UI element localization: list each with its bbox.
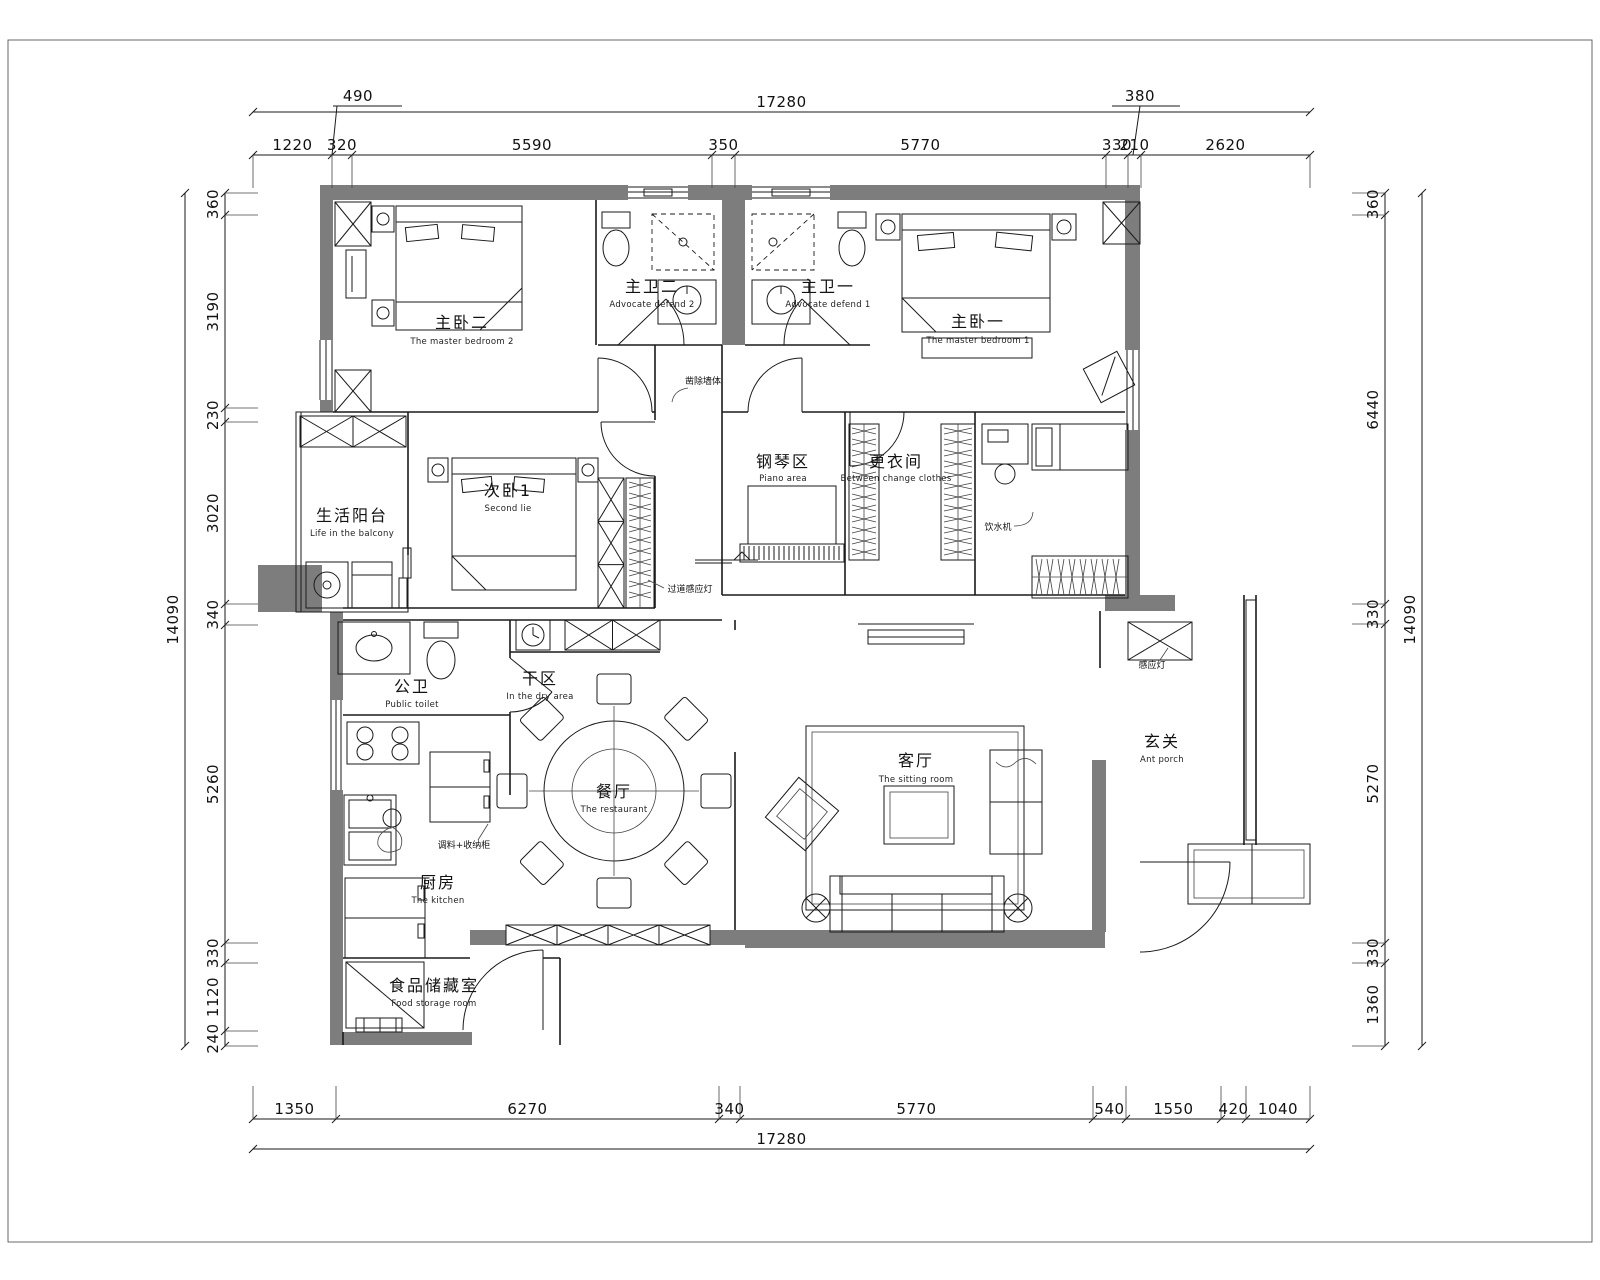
single-bed-icon xyxy=(1032,424,1128,470)
piano-icon xyxy=(740,486,844,562)
svg-text:公卫: 公卫 xyxy=(394,677,430,696)
svg-text:食品储藏室: 食品储藏室 xyxy=(389,976,479,995)
window-icon xyxy=(628,187,688,198)
armchair-icon xyxy=(765,777,838,850)
shower-icon xyxy=(652,214,714,270)
dim-label: 3020 xyxy=(204,493,222,533)
room-label-entry: 玄关Ant porch xyxy=(1140,732,1184,765)
svg-text:主卫一: 主卫一 xyxy=(801,277,855,296)
door-arc xyxy=(601,422,655,476)
nightstand-icon xyxy=(1052,214,1076,240)
room-label-second-bedroom: 次卧1Second lie xyxy=(484,481,532,514)
svg-text:Piano area: Piano area xyxy=(759,474,807,484)
annotations: 凿除墙体 饮水机 过道感应灯 调料+收纳柜 感应灯 xyxy=(438,375,1168,851)
nightstand-icon xyxy=(578,458,598,482)
bed-icon xyxy=(452,458,576,590)
kitchen-fixtures xyxy=(344,722,490,958)
windows xyxy=(320,187,1256,840)
room-label-balcony: 生活阳台Life in the balcony xyxy=(310,506,394,539)
svg-text:Life in the balcony: Life in the balcony xyxy=(310,529,394,539)
dim-label: 5770 xyxy=(896,1100,936,1118)
svg-text:Advocate defend 1: Advocate defend 1 xyxy=(785,300,870,310)
fridge-icon xyxy=(345,878,425,958)
public-bathroom-fixtures xyxy=(338,622,458,679)
svg-text:饮水机: 饮水机 xyxy=(984,521,1011,533)
window-icon xyxy=(752,187,830,198)
sheet-border xyxy=(8,40,1592,1242)
dim-label: 5260 xyxy=(204,764,222,804)
svg-text:Public toilet: Public toilet xyxy=(385,700,439,710)
svg-text:Ant porch: Ant porch xyxy=(1140,755,1184,765)
dim-label: 230 xyxy=(204,400,222,430)
room-label-living: 客厅The sitting room xyxy=(878,751,954,785)
window-icon xyxy=(331,700,341,790)
svg-text:The sitting room: The sitting room xyxy=(878,775,954,785)
annotation-corridor-sensor-light: 过道感应灯 xyxy=(648,580,713,595)
toilet-icon xyxy=(838,212,866,266)
svg-text:更衣间: 更衣间 xyxy=(869,452,923,471)
entry-landing xyxy=(1188,844,1310,904)
door-arc xyxy=(748,358,802,412)
dry-area-counter xyxy=(516,620,550,650)
dim-label: 1360 xyxy=(1364,984,1382,1024)
dim-label: 330 xyxy=(204,938,222,968)
toilet-icon xyxy=(602,212,630,266)
dim-label: 420 xyxy=(1218,1100,1248,1118)
svg-text:The kitchen: The kitchen xyxy=(410,896,464,906)
room-label-dry-area: 干区In the dry area xyxy=(506,669,573,702)
dim-label: 3190 xyxy=(204,291,222,331)
svg-text:凿除墙体: 凿除墙体 xyxy=(685,375,721,387)
dim-label: 6440 xyxy=(1364,389,1382,429)
svg-text:Between change clothes: Between change clothes xyxy=(840,474,951,484)
room-label-master-bath-1: 主卫一Advocate defend 1 xyxy=(785,277,870,310)
room-label-piano-area: 钢琴区Piano area xyxy=(756,452,810,484)
room-label-pantry: 食品储藏室Food storage room xyxy=(389,976,479,1009)
sink-icon xyxy=(344,795,396,865)
dim-label: 350 xyxy=(708,136,738,154)
svg-text:主卫二: 主卫二 xyxy=(625,277,679,296)
second-bedroom-furniture xyxy=(428,458,598,590)
study-room-furniture xyxy=(982,424,1128,484)
svg-text:Food storage room: Food storage room xyxy=(391,999,476,1009)
dim-label: 1120 xyxy=(204,977,222,1017)
pantry-fixtures xyxy=(346,962,424,1032)
room-labels: 主卧二The master bedroom 2 主卫二Advocate defe… xyxy=(310,277,1184,1009)
svg-text:餐厅: 餐厅 xyxy=(596,782,632,801)
dim-label: 1550 xyxy=(1153,1100,1193,1118)
svg-text:主卧一: 主卧一 xyxy=(951,312,1005,331)
toilet-icon xyxy=(424,622,458,679)
tv-cabinet-icon xyxy=(346,250,366,298)
svg-text:厨房: 厨房 xyxy=(420,873,456,892)
dim-label: 1350 xyxy=(274,1100,314,1118)
balcony-cabinet xyxy=(352,562,392,608)
dim-label: 320 xyxy=(327,136,357,154)
dim-label: 14090 xyxy=(1401,594,1419,644)
dim-label: 340 xyxy=(714,1100,744,1118)
generated-symbols xyxy=(300,202,1192,945)
dim-label: 1220 xyxy=(272,136,312,154)
nightstand-icon xyxy=(428,458,448,482)
svg-text:过道感应灯: 过道感应灯 xyxy=(667,583,712,595)
svg-text:感应灯: 感应灯 xyxy=(1138,659,1165,671)
room-label-dining: 餐厅The restaurant xyxy=(579,782,647,815)
desk-icon xyxy=(982,424,1028,484)
svg-text:玄关: 玄关 xyxy=(1144,732,1180,751)
svg-text:The restaurant: The restaurant xyxy=(579,805,647,815)
dim-label: 360 xyxy=(1364,189,1382,219)
stove-icon xyxy=(347,722,419,764)
nightstand-icon xyxy=(372,206,394,232)
svg-text:主卧二: 主卧二 xyxy=(435,313,489,332)
dim-label: 1040 xyxy=(1258,1100,1298,1118)
svg-text:In the dry area: In the dry area xyxy=(506,692,573,702)
dim-label: 17280 xyxy=(756,1130,806,1148)
nightstand-icon xyxy=(876,214,900,240)
tv-icon xyxy=(858,624,974,644)
svg-text:生活阳台: 生活阳台 xyxy=(316,506,388,525)
coffee-table-icon xyxy=(884,786,954,844)
sliding-door-icon xyxy=(399,548,411,608)
window-icon xyxy=(1127,350,1139,430)
room-label-master-bath-2: 主卫二Advocate defend 2 xyxy=(609,277,694,310)
room-label-public-bathroom: 公卫Public toilet xyxy=(385,677,439,710)
svg-text:Advocate defend 2: Advocate defend 2 xyxy=(609,300,694,310)
annotation-demolish-wall: 凿除墙体 xyxy=(672,375,721,402)
svg-text:The master bedroom 1: The master bedroom 1 xyxy=(925,336,1029,346)
dim-label: 340 xyxy=(204,599,222,629)
entry-door-arc xyxy=(1140,862,1230,952)
annotation-spice-storage: 调料+收纳柜 xyxy=(438,824,491,851)
master-bedroom-2-furniture xyxy=(346,206,522,330)
dimension-lines: 1728012203205590350577033021026201350627… xyxy=(164,93,1426,1153)
dim-offset-left: 490 xyxy=(343,87,373,105)
vanity-sink-icon xyxy=(338,622,410,674)
dim-label: 330 xyxy=(1364,938,1382,968)
prep-counter-icon xyxy=(430,752,490,822)
person-figure xyxy=(378,809,402,852)
svg-text:次卧1: 次卧1 xyxy=(484,481,532,500)
svg-text:调料+收纳柜: 调料+收纳柜 xyxy=(438,839,491,851)
dim-label: 5590 xyxy=(512,136,552,154)
dim-label: 240 xyxy=(204,1023,222,1053)
entry-sidelight-window xyxy=(1246,600,1256,840)
svg-text:干区: 干区 xyxy=(522,669,558,688)
dim-label: 5270 xyxy=(1364,763,1382,803)
door-arc xyxy=(598,358,652,412)
dim-label: 5770 xyxy=(900,136,940,154)
dim-label: 17280 xyxy=(756,93,806,111)
dim-offset-right: 380 xyxy=(1125,87,1155,105)
window-icon xyxy=(320,340,332,400)
room-label-dressing-room: 更衣间Between change clothes xyxy=(840,452,951,484)
svg-text:客厅: 客厅 xyxy=(898,751,934,770)
annotation-water-dispenser: 饮水机 xyxy=(984,512,1033,533)
dim-label: 330 xyxy=(1364,599,1382,629)
svg-text:Second lie: Second lie xyxy=(485,504,532,514)
floor-plan-drawing: 1728012203205590350577033021026201350627… xyxy=(0,0,1600,1280)
svg-text:The master bedroom 2: The master bedroom 2 xyxy=(409,337,513,347)
dim-label: 540 xyxy=(1094,1100,1124,1118)
loveseat-icon xyxy=(990,750,1042,854)
dim-label: 360 xyxy=(204,189,222,219)
bed-icon xyxy=(396,206,522,330)
room-label-master-bedroom-1: 主卧一The master bedroom 1 xyxy=(925,312,1029,346)
doors xyxy=(463,299,1230,1030)
svg-text:钢琴区: 钢琴区 xyxy=(756,452,810,471)
master-bedroom-1-furniture xyxy=(876,214,1135,403)
shower-icon xyxy=(752,214,814,270)
dim-label: 14090 xyxy=(164,594,182,644)
nightstand-icon xyxy=(372,300,394,326)
dim-label: 6270 xyxy=(507,1100,547,1118)
dim-label: 2620 xyxy=(1205,136,1245,154)
